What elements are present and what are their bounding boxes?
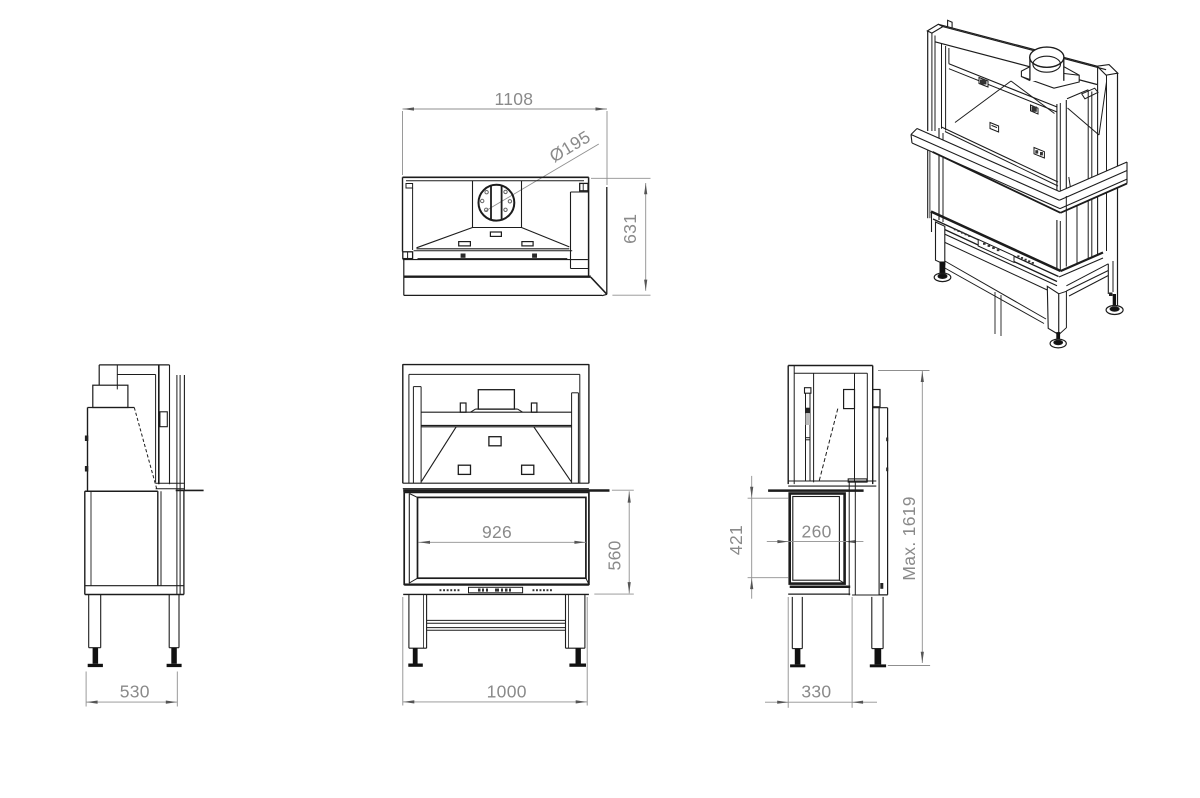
svg-text:560: 560: [605, 540, 625, 570]
svg-text:421: 421: [726, 525, 746, 555]
svg-text:926: 926: [482, 522, 512, 542]
svg-text:530: 530: [120, 682, 150, 702]
svg-text:1108: 1108: [494, 89, 533, 109]
svg-text:330: 330: [801, 682, 831, 702]
svg-text:1000: 1000: [487, 682, 527, 702]
svg-text:Max. 1619: Max. 1619: [899, 496, 919, 580]
svg-text:631: 631: [620, 214, 640, 244]
svg-text:260: 260: [802, 522, 832, 542]
